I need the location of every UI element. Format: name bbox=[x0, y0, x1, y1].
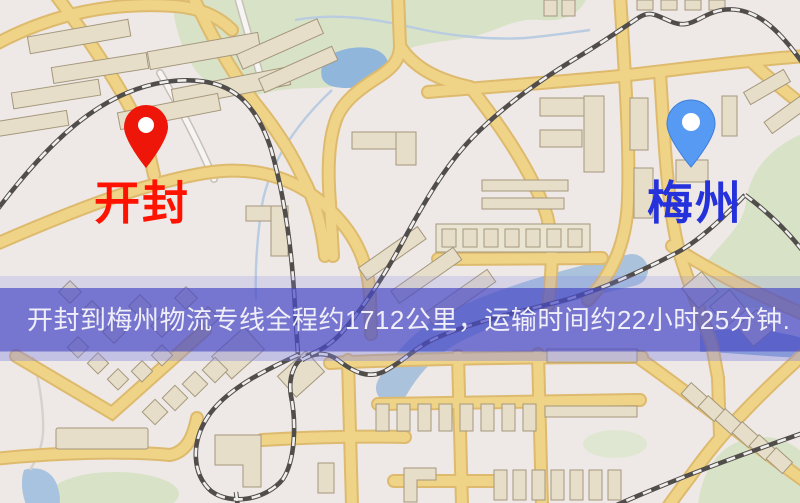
map-screenshot: 开封到梅州物流专线全程约1712公里，运输时间约22小时25分钟. 开封 梅州 bbox=[0, 0, 800, 503]
kaifeng-pin-body bbox=[124, 105, 168, 168]
map-canvas[interactable] bbox=[0, 0, 800, 503]
route-info-banner: 开封到梅州物流专线全程约1712公里，运输时间约22小时25分钟. bbox=[0, 276, 800, 361]
kaifeng-pin-hole bbox=[138, 117, 154, 133]
kaifeng-label: 开封 bbox=[90, 179, 194, 227]
meizhou-label: 梅州 bbox=[636, 179, 754, 227]
kaifeng-pin[interactable] bbox=[116, 100, 176, 172]
meizhou-pin-hole bbox=[682, 113, 700, 131]
meizhou-pin-body bbox=[667, 100, 715, 167]
meizhou-pin[interactable] bbox=[659, 96, 723, 172]
route-info-text: 开封到梅州物流专线全程约1712公里，运输时间约22小时25分钟. bbox=[27, 303, 790, 337]
